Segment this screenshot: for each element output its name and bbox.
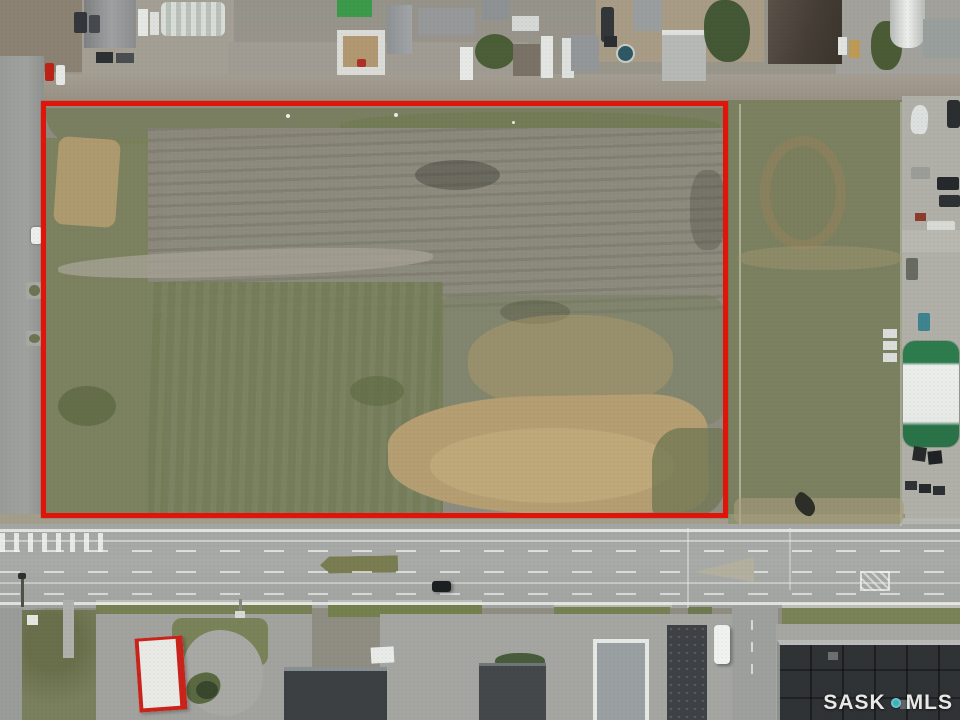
property-boundary-outline: [41, 101, 728, 518]
watermark-dot-icon: [891, 698, 901, 708]
watermark-brand-left: SASK: [823, 691, 885, 715]
sask-mls-watermark: SASK MLS: [823, 691, 953, 715]
watermark-brand-right: MLS: [906, 691, 953, 715]
aerial-photo: SASK MLS: [0, 0, 960, 720]
